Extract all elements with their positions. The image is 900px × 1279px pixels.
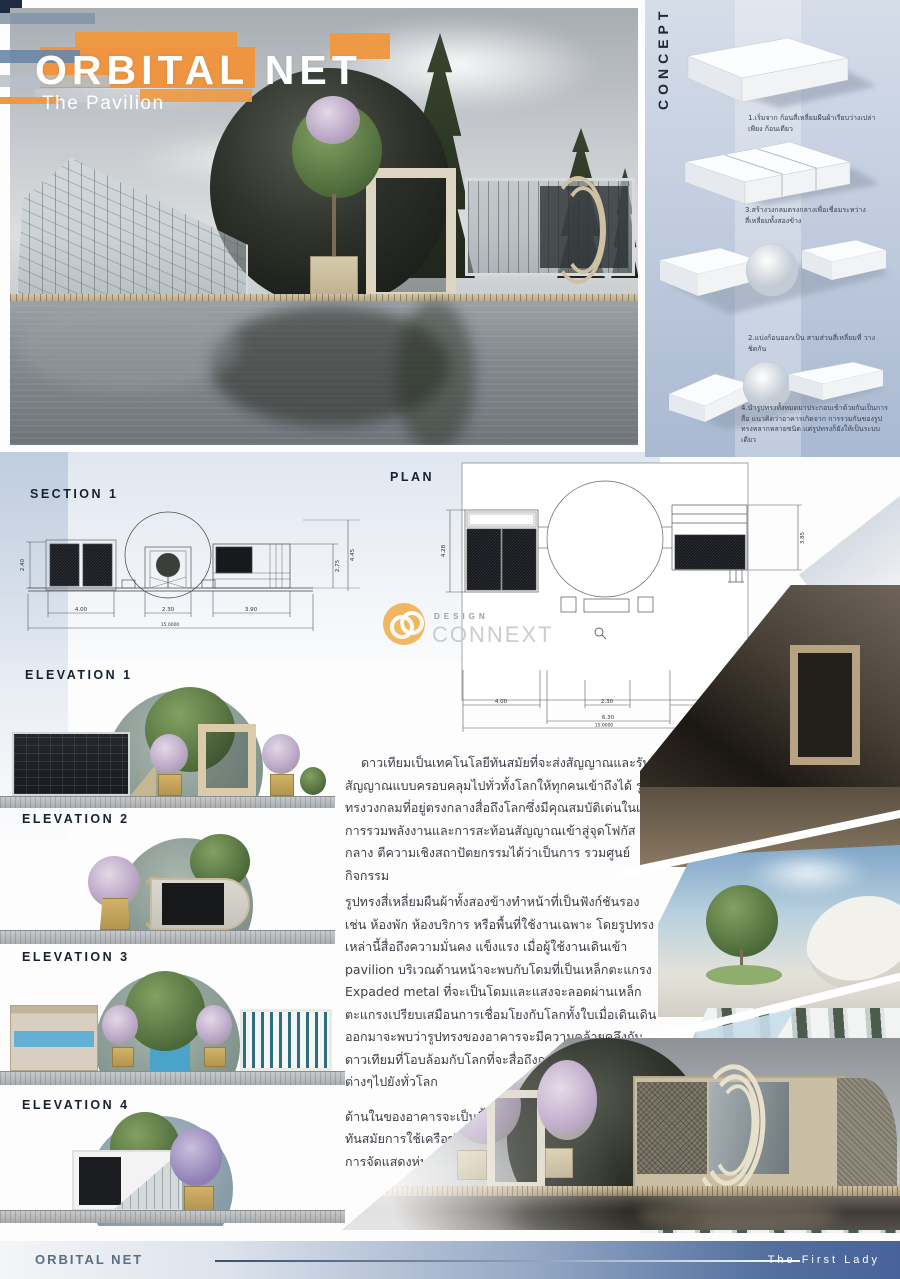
flower-tree: [170, 1128, 222, 1186]
planter: [112, 1047, 134, 1067]
planter: [100, 898, 130, 930]
footer-team-name: The First Lady: [768, 1254, 880, 1266]
shrub: [300, 767, 326, 795]
glass-wedge-box: [72, 1150, 182, 1211]
presentation-board: ORBITAL NET The Pavilion CONCEPT 1.เริ่ม…: [0, 0, 900, 1279]
concept-diagram-3: [650, 222, 895, 320]
plan-dim-mid: 6.30: [602, 715, 615, 721]
pod-window: [162, 883, 224, 925]
section-drawing: 2.40 4.45 2.75 4.00 2.30 3.90 15.0000: [8, 495, 360, 647]
section-dim-left: 2.40: [20, 558, 26, 571]
flower-tree: [196, 1005, 232, 1045]
plan-dim-right: 3.85: [800, 531, 806, 544]
ground-line: [0, 1210, 345, 1223]
section-dim-total: 15.0000: [161, 622, 180, 628]
elevation1-render: [0, 682, 335, 808]
photo-portal: [790, 645, 860, 765]
section-dim-right-inner: 2.75: [335, 559, 341, 572]
elevation1-label: ELEVATION 1: [25, 668, 133, 682]
section-dim-1: 4.00: [75, 607, 88, 613]
solar-panel-box: [12, 732, 130, 796]
planter: [204, 1047, 226, 1067]
plan-dim-total: 15.0000: [595, 723, 614, 729]
ground-line: [0, 796, 335, 808]
design-connext-logo-icon: [383, 603, 425, 645]
tree-reflection: [395, 301, 475, 445]
footer-project-name: ORBITAL NET: [35, 1252, 143, 1267]
glass-reflection: [20, 301, 240, 391]
elevation4-render: [0, 1110, 345, 1226]
render-photo-courtyard: [658, 845, 900, 1017]
section-dim-right-outer: 4.45: [350, 548, 356, 561]
concept-caption-4: 4.นำรูปทรงทั้งหมดมาประกอบเข้าด้วยกันเป็น…: [741, 403, 893, 445]
title-stripe-orange-top: [75, 32, 237, 47]
planter: [158, 774, 182, 796]
title-stripe-steel: [0, 13, 95, 24]
ring-arc: [562, 186, 604, 274]
elevation3-render: [0, 963, 345, 1085]
wedge-window: [79, 1157, 121, 1205]
planter: [270, 774, 294, 796]
concept-panel: CONCEPT 1.เริ่มจาก ก้อนสี่เหลี่ยมผืนผ้าเ…: [645, 0, 900, 457]
elevation2-label: ELEVATION 2: [22, 812, 130, 826]
watermark-connext-text: CONNEXT: [432, 622, 554, 648]
concept-heading: CONCEPT: [655, 7, 671, 110]
elevation3-label: ELEVATION 3: [22, 950, 130, 964]
tree: [125, 971, 205, 1051]
logo-ring-icon: [400, 611, 424, 635]
planter: [184, 1186, 214, 1211]
board-subtitle: The Pavilion: [42, 93, 165, 115]
tree: [706, 885, 778, 957]
plan-dim-2: 2.30: [601, 699, 614, 705]
elevation2-render: [0, 826, 335, 944]
ground-line: [0, 1071, 345, 1085]
concept-diagram-2: [670, 130, 885, 208]
flower-tree: [150, 734, 188, 774]
section-dim-3: 3.90: [245, 607, 258, 613]
section-dim-2: 2.30: [162, 607, 175, 613]
flower-tree-blossom: [306, 96, 360, 144]
louver-box: [240, 1009, 332, 1071]
water-reflection: [10, 301, 638, 445]
footer-divider-line: [215, 1260, 800, 1262]
concept-diagram-1: [670, 28, 885, 113]
pool-stripe: [14, 1031, 94, 1047]
lawn-circle: [706, 965, 782, 985]
tree-trunk: [332, 194, 336, 258]
portal-frame: [366, 168, 456, 302]
description-paragraph-1: ดาวเทียมเป็นเทคโนโลยีทันสมัยที่จะส่งสัญญ…: [345, 752, 663, 887]
flower-tree: [262, 734, 300, 774]
plan-dim-1: 4.00: [495, 699, 508, 705]
flower-tree: [102, 1005, 138, 1045]
watermark-design-text: DESIGN: [434, 612, 489, 621]
portal-frame: [198, 724, 256, 796]
plan-dim-left: 4.28: [441, 544, 447, 557]
plan-label: PLAN: [390, 470, 434, 484]
ground-line: [0, 930, 335, 944]
board-title: ORBITAL NET: [35, 50, 362, 91]
cloud: [748, 853, 868, 893]
